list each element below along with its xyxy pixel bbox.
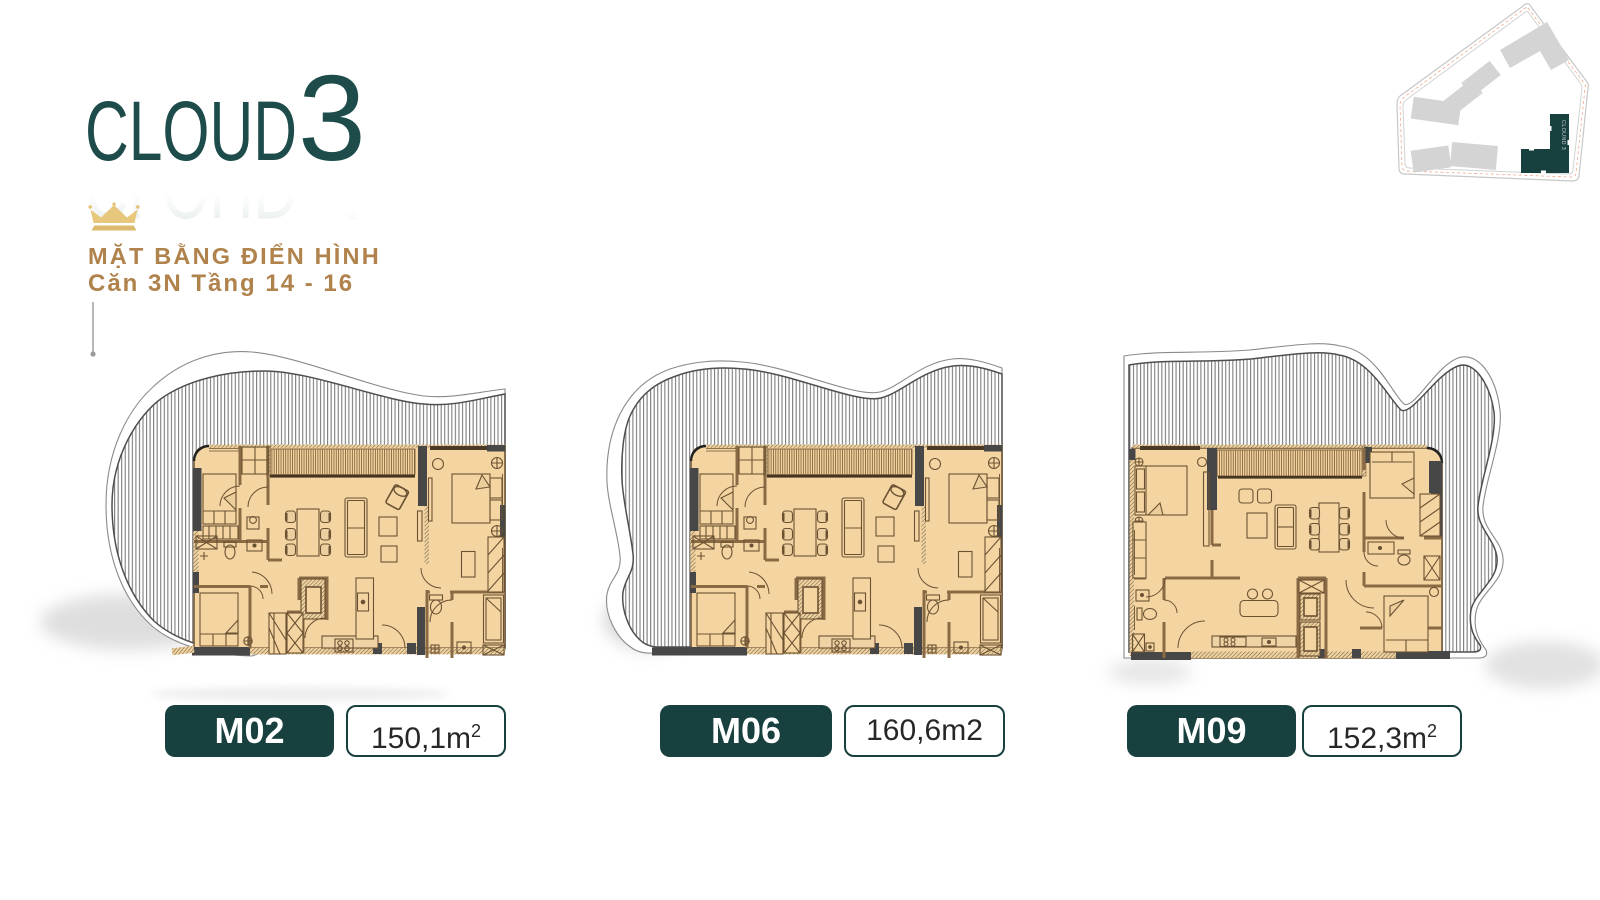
svg-text:CLOUND 3: CLOUND 3 [1560, 120, 1566, 150]
svg-text:3: 3 [298, 134, 366, 220]
